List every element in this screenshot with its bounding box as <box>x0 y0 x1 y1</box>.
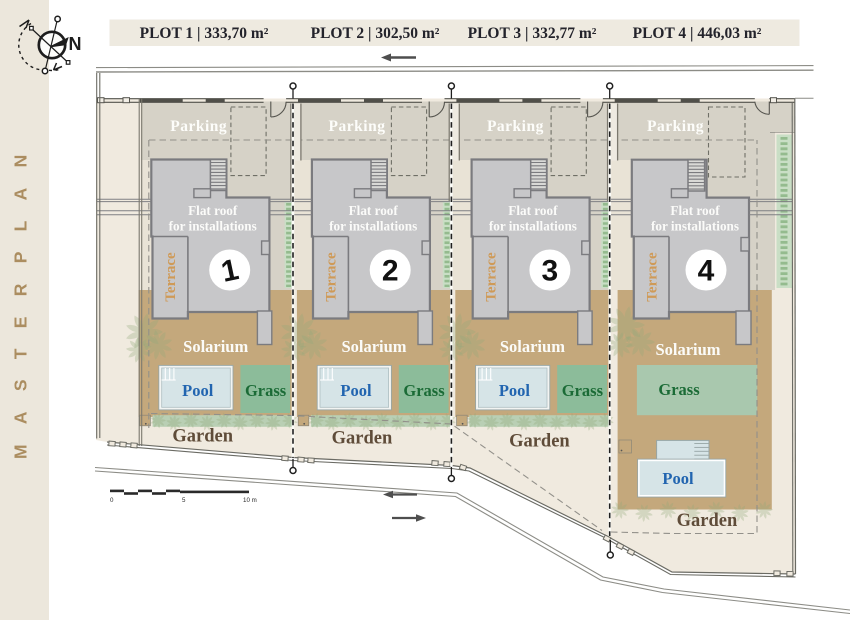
svg-text:Flat roof: Flat roof <box>188 203 238 218</box>
svg-text:2: 2 <box>382 255 399 288</box>
svg-text:3: 3 <box>542 255 559 288</box>
svg-text:5: 5 <box>182 497 186 504</box>
svg-text:Parking: Parking <box>170 118 227 135</box>
svg-text:Grass: Grass <box>403 381 445 400</box>
svg-text:Grass: Grass <box>658 380 700 399</box>
svg-text:N: N <box>69 34 82 54</box>
svg-text:Pool: Pool <box>662 469 694 488</box>
svg-text:Pool: Pool <box>182 381 214 400</box>
svg-text:Flat roof: Flat roof <box>508 203 558 218</box>
svg-text:Flat roof: Flat roof <box>349 203 399 218</box>
svg-text:PLOT 1 | 333,70 m²: PLOT 1 | 333,70 m² <box>140 25 269 42</box>
svg-text:Garden: Garden <box>509 432 570 452</box>
svg-text:Grass: Grass <box>245 381 287 400</box>
svg-text:Solarium: Solarium <box>183 337 248 356</box>
svg-text:4: 4 <box>698 255 715 288</box>
svg-text:Pool: Pool <box>499 381 531 400</box>
svg-text:PLOT 3 | 332,77 m²: PLOT 3 | 332,77 m² <box>468 25 597 42</box>
svg-text:PLOT 4 | 446,03 m²: PLOT 4 | 446,03 m² <box>633 25 762 42</box>
svg-text:Flat roof: Flat roof <box>670 203 720 218</box>
svg-text:Garden: Garden <box>332 429 393 449</box>
svg-text:for installations: for installations <box>489 219 577 234</box>
svg-text:Terrace: Terrace <box>644 252 660 302</box>
svg-text:Terrace: Terrace <box>483 252 499 302</box>
svg-text:10 m: 10 m <box>243 497 257 504</box>
svg-text:0: 0 <box>110 497 114 504</box>
svg-text:PLOT 2 | 302,50 m²: PLOT 2 | 302,50 m² <box>311 25 440 42</box>
svg-text:Garden: Garden <box>677 511 738 531</box>
svg-text:MASTERPLAN: MASTERPLAN <box>11 134 31 459</box>
svg-text:Parking: Parking <box>487 118 544 135</box>
svg-text:for installations: for installations <box>329 219 417 234</box>
svg-text:for installations: for installations <box>169 219 257 234</box>
svg-text:Grass: Grass <box>562 381 604 400</box>
svg-text:Pool: Pool <box>340 381 372 400</box>
svg-text:Solarium: Solarium <box>655 340 720 359</box>
svg-text:Terrace: Terrace <box>163 252 179 302</box>
svg-text:Parking: Parking <box>329 118 386 135</box>
svg-text:Terrace: Terrace <box>324 252 340 302</box>
svg-text:Garden: Garden <box>172 427 233 447</box>
svg-text:Solarium: Solarium <box>341 337 406 356</box>
svg-text:Parking: Parking <box>647 118 704 135</box>
svg-text:Solarium: Solarium <box>500 337 565 356</box>
svg-text:for installations: for installations <box>651 219 739 234</box>
